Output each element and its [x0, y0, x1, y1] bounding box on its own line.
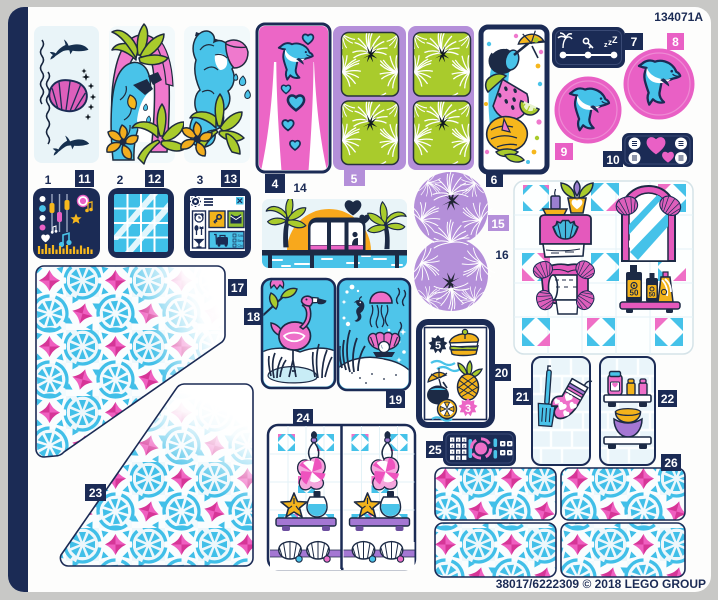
- svg-text:5: 5: [351, 172, 358, 186]
- svg-text:3: 3: [197, 173, 204, 187]
- svg-text:7: 7: [631, 35, 638, 49]
- svg-text:50: 50: [630, 289, 639, 298]
- svg-text:6: 6: [491, 173, 498, 187]
- svg-text:20: 20: [495, 366, 509, 380]
- svg-text:17: 17: [231, 281, 245, 295]
- svg-text:3: 3: [465, 403, 471, 415]
- svg-text:22: 22: [661, 392, 675, 406]
- svg-text:19: 19: [389, 393, 403, 407]
- svg-text:21: 21: [516, 390, 530, 404]
- svg-text:18: 18: [247, 310, 261, 324]
- svg-text:13: 13: [224, 172, 238, 186]
- svg-text:134071A: 134071A: [654, 10, 703, 24]
- svg-text:1: 1: [45, 173, 52, 187]
- svg-text:24: 24: [296, 411, 310, 425]
- svg-text:10: 10: [606, 153, 620, 167]
- svg-text:2: 2: [117, 173, 124, 187]
- svg-text:38017/6222309 © 2018 LEGO GROU: 38017/6222309 © 2018 LEGO GROUP: [496, 577, 706, 591]
- svg-text:Sitt.: Sitt.: [238, 234, 244, 238]
- svg-text:15: 15: [491, 217, 505, 231]
- svg-text:Z: Z: [612, 35, 618, 45]
- svg-text:25: 25: [428, 443, 442, 457]
- svg-text:8: 8: [672, 35, 679, 49]
- svg-text:26: 26: [664, 456, 678, 470]
- svg-text:5: 5: [435, 340, 441, 352]
- svg-text:16: 16: [495, 248, 509, 262]
- svg-text:14: 14: [293, 181, 307, 195]
- svg-text:50: 50: [649, 293, 656, 299]
- svg-text:11: 11: [78, 172, 91, 186]
- svg-text:Bea.: Bea.: [238, 239, 245, 243]
- svg-text:23: 23: [89, 486, 103, 500]
- svg-text:12: 12: [148, 172, 162, 186]
- svg-text:4: 4: [272, 177, 279, 191]
- svg-text:9: 9: [561, 145, 568, 159]
- svg-text:Chi: Chi: [238, 244, 244, 248]
